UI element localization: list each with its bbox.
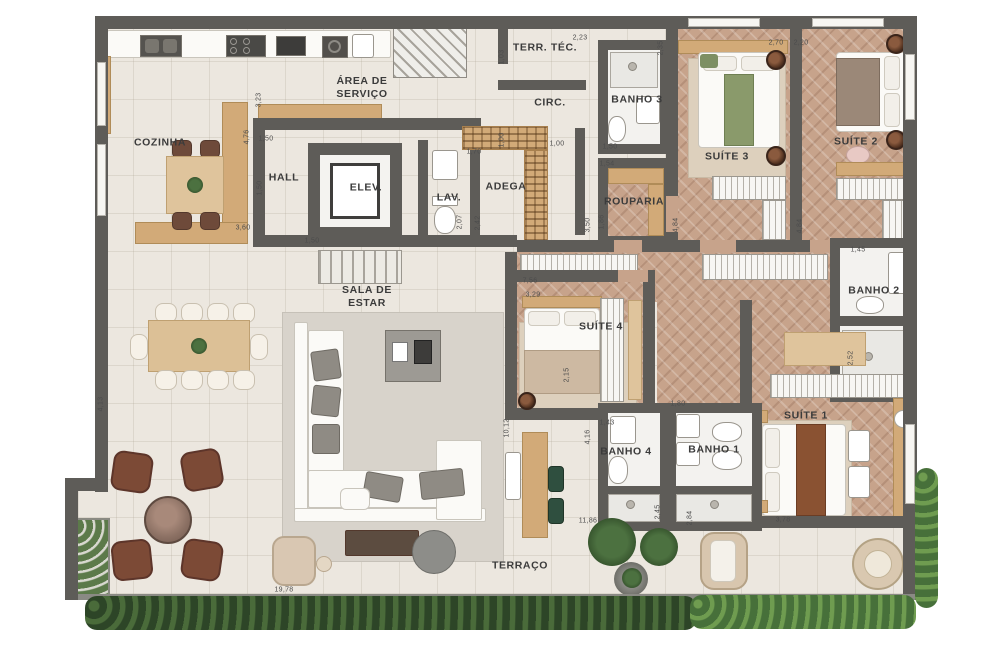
dim-label: 1,86 (599, 215, 606, 230)
dim-label: 1,50 (603, 144, 618, 151)
dim-label: 4,76 (244, 130, 251, 145)
dim-label: 11,86 (579, 518, 598, 525)
dim-label: 1,50 (259, 136, 274, 143)
dim-label: 19,78 (274, 587, 293, 594)
dim-label: 3,23 (256, 93, 263, 108)
dim-label: 1,54 (600, 161, 615, 168)
dim-label: 3,60 (236, 225, 251, 232)
dim-label: 2,42 (475, 216, 482, 231)
dim-label: 1,50 (305, 238, 320, 245)
room-label-rouparia: ROUPARIA (604, 195, 664, 208)
dim-label: 1,43 (600, 420, 615, 427)
room-label-banho-2: BANHO 2 (848, 284, 899, 297)
dim-label: 3,78 (776, 517, 791, 524)
room-label-cozinha: COZINHA (134, 136, 186, 149)
room-label-terraco: TERRAÇO (492, 559, 548, 572)
dim-label: 3,50 (585, 218, 592, 233)
dim-label: 2,07 (457, 215, 464, 230)
dim-label: 2,35 (658, 41, 665, 56)
room-label-suite-1: SUÍTE 1 (784, 409, 828, 422)
dim-label: 2,15 (564, 368, 571, 383)
dim-label: 7,56 (523, 278, 538, 285)
dim-label: 1,00 (550, 141, 565, 148)
room-label-circ: CIRC. (534, 96, 566, 109)
dim-label: 4,84 (797, 219, 804, 234)
dim-label: 2,45 (655, 505, 662, 520)
dim-label: 4,84 (673, 218, 680, 233)
dim-label: 2,23 (573, 35, 588, 42)
room-label-lav: LAV. (437, 191, 462, 204)
dim-label: 2,70 (769, 40, 784, 47)
dim-label: 1,03 (499, 50, 506, 65)
dim-label: 3,29 (526, 292, 541, 299)
dim-label: 10,12 (504, 418, 511, 437)
room-label-banho-3: BANHO 3 (611, 93, 662, 106)
dim-label: 2,52 (848, 351, 855, 366)
room-label-banho-4: BANHO 4 (600, 445, 651, 458)
room-label-elev: ELEV. (350, 181, 382, 194)
room-label-hall: HALL (269, 171, 299, 184)
dim-label: 1,80 (671, 401, 686, 408)
dim-label: 4,13 (98, 397, 105, 412)
room-label-banho-1: BANHO 1 (688, 443, 739, 456)
floor-plan: COZINHAÁREA DE SERVIÇOHALLELEV.LAV.ADEGA… (0, 0, 983, 650)
dim-label: 1,45 (851, 247, 866, 254)
dim-label: 4,16 (585, 430, 592, 445)
dim-label: 2,84 (687, 511, 694, 526)
dim-label: 1,50 (257, 181, 264, 196)
room-label-adega: ADEGA (486, 180, 527, 193)
room-label-terr-tec: TERR. TÉC. (513, 41, 577, 54)
room-label-suite-2: SUÍTE 2 (834, 135, 878, 148)
room-label-sala-de-estar: SALA DE ESTAR (342, 284, 392, 310)
room-label-suite-4: SUÍTE 4 (579, 320, 623, 333)
dim-label: 2,20 (794, 40, 809, 47)
room-label-suite-3: SUÍTE 3 (705, 150, 749, 163)
room-label-area-de-servico: ÁREA DE SERVIÇO (336, 75, 387, 101)
dim-label: 1,00 (499, 133, 506, 148)
labels-layer: COZINHAÁREA DE SERVIÇOHALLELEV.LAV.ADEGA… (0, 0, 983, 650)
dim-label: 1,70 (467, 149, 482, 156)
